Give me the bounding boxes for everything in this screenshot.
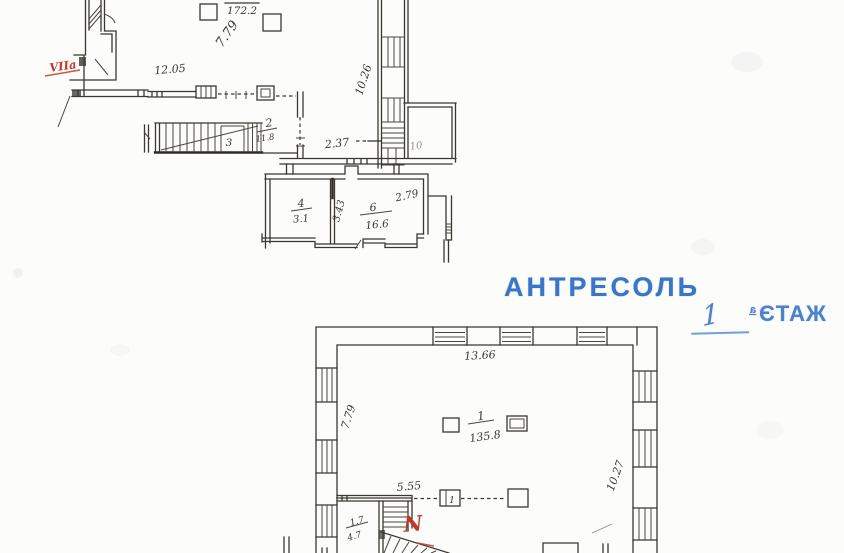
- dim-label-555: 5.55: [396, 479, 422, 494]
- mezzanine-entry-wall: [72, 90, 148, 97]
- room4-area: 3.1: [293, 213, 310, 225]
- dim-label-1026: 10.26: [352, 63, 374, 97]
- dim-label-237: 2.37: [323, 136, 350, 152]
- floorplan-drawing: 7.79 12.05 172.2 2 11.8 3 2.37 4 3.1 3.4…: [0, 0, 844, 553]
- red-mark-n: N: [401, 510, 424, 537]
- mezzanine-rooms-4-6-walls: [262, 166, 452, 262]
- mezzanine-red-mark: VIIа: [45, 57, 80, 76]
- dim-label-279: 2.79: [393, 188, 420, 205]
- first-floor-plan: 13.66 7.79 10.27 1 135.8 5.55 1.7 4.7 1 …: [284, 327, 657, 553]
- mezzanine-stair-hatch: [89, 5, 101, 29]
- room2-area: 11.8: [255, 132, 276, 145]
- room4-number: 4: [296, 197, 305, 211]
- floor-number-underline: [691, 317, 749, 335]
- dim-label-779-floor1: 7.79: [339, 403, 359, 430]
- room6-number: 6: [369, 201, 377, 215]
- floor-word-mirrored: ЖАТЭа: [749, 301, 826, 327]
- room1-area: 135.8: [469, 428, 502, 445]
- dim-label-1027: 10.27: [604, 459, 627, 493]
- mezzanine-stair-diagonal: [161, 126, 258, 150]
- dim-label-343: 3.43: [331, 199, 347, 223]
- floor1-right-windows: [633, 371, 657, 540]
- floor1-bottom-fragments: [284, 524, 612, 553]
- floor1-labels: 13.66 7.79 10.27 1 135.8 5.55 1.7 4.7 1: [339, 348, 627, 544]
- mezzanine-plan: 7.79 12.05 172.2 2 11.8 3 2.37 4 3.1 3.4…: [45, 0, 456, 262]
- door-number-label: 1: [449, 496, 455, 506]
- room6-area: 16.6: [365, 218, 390, 232]
- scan-noise: [13, 52, 784, 439]
- dim-label-47: 4.7: [345, 530, 363, 544]
- floor-word-superscript: а: [749, 304, 756, 316]
- dim-label-1366: 13.66: [464, 348, 496, 363]
- floor1-red-mark: N: [401, 510, 434, 546]
- floor-word-text: ЖАТЭ: [758, 301, 826, 326]
- mezzanine-title: АНТРЕСОЛЬ: [504, 272, 700, 303]
- floor1-interior-wall: [337, 489, 528, 507]
- stair-room-label: 3: [226, 137, 233, 149]
- room2-number: 2: [264, 116, 274, 130]
- room10-label: 10: [409, 140, 424, 153]
- dim-label-779-mezz: 7.79: [213, 18, 242, 50]
- dim-label-1205: 12.05: [154, 62, 187, 78]
- floor1-left-windows: [316, 368, 337, 537]
- floor1-top-windows: [433, 327, 607, 345]
- scanned-floorplan-page: 7.79 12.05 172.2 2 11.8 3 2.37 4 3.1 3.4…: [0, 0, 844, 553]
- area-label-1722: 172.2: [227, 5, 257, 17]
- mezzanine-room10-walls: [280, 103, 456, 164]
- column-square: [508, 489, 528, 507]
